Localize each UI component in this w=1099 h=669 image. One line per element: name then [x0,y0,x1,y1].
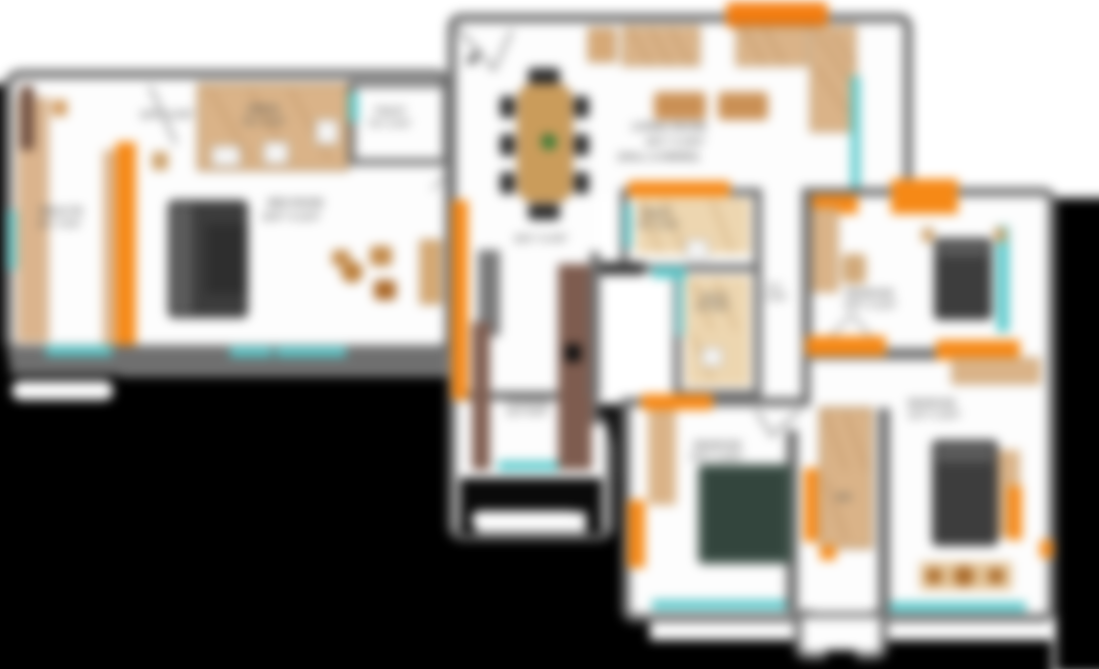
svg-text:10'1"X4'0": 10'1"X4'0" [506,407,550,417]
svg-text:20'1" X 10'0": 20'1" X 10'0" [646,137,706,148]
svg-text:5'1": 5'1" [768,283,783,292]
svg-text:7'6" X 4'0": 7'6" X 4'0" [368,119,412,129]
svg-text:10'0" X 10'0": 10'0" X 10'0" [690,452,744,462]
svg-text:11'3" X 10'0": 11'3" X 10'0" [908,410,961,420]
svg-text:10'0" X 11'6": 10'0" X 11'6" [844,300,897,310]
svg-text:BED ROOM: BED ROOM [268,198,323,209]
svg-text:BEDROOM: BEDROOM [694,440,741,450]
svg-text:WALK IN: WALK IN [40,206,82,217]
svg-text:X 8'0": X 8'0" [766,293,788,302]
svg-text:DRESS: DRESS [248,104,279,114]
svg-text:4'0" X 9'6": 4'0" X 9'6" [38,219,82,229]
svg-text:7'6" X 4'0": 7'6" X 4'0" [242,117,286,127]
svg-text:W/D: W/D [836,493,852,502]
svg-text:5'6"X4'0": 5'6"X4'0" [696,303,731,312]
svg-text:PASSAGE: PASSAGE [506,396,549,406]
svg-text:BEDROOM: BEDROOM [846,288,893,298]
svg-text:7'6" X 4'0": 7'6" X 4'0" [636,220,680,230]
svg-text:10'0" X 11'0": 10'0" X 11'0" [262,212,322,223]
svg-text:LIVING ROOM: LIVING ROOM [632,121,706,133]
svg-text:(HALL & DINING): (HALL & DINING) [618,152,699,163]
svg-text:TOILET: TOILET [700,293,728,302]
svg-text:10'1" X 4'0": 10'1" X 4'0" [514,234,569,245]
svg-text:TOILET: TOILET [374,106,406,116]
svg-text:10'0" X 6'8": 10'0" X 6'8" [140,110,195,121]
svg-text:TOILET: TOILET [640,208,672,218]
svg-text:BEDROOM: BEDROOM [908,398,955,408]
